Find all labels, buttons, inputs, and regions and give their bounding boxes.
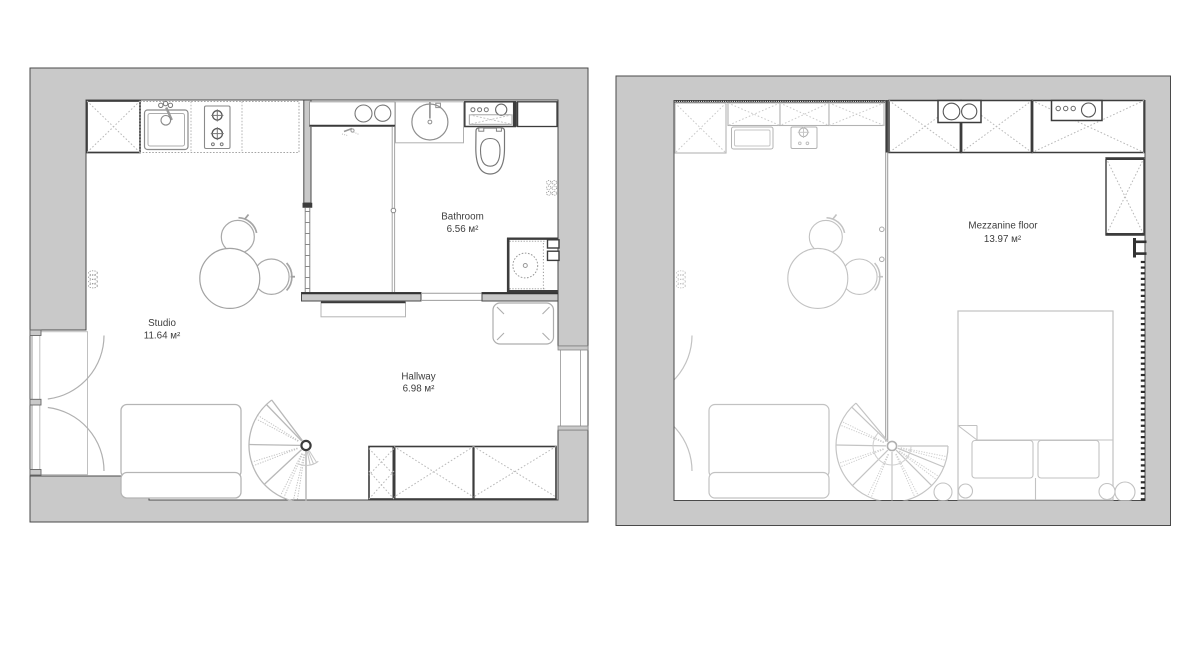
svg-text:6.98 м²: 6.98 м²	[403, 384, 436, 395]
svg-text:11.64 м²: 11.64 м²	[144, 331, 181, 342]
svg-text:Bathroom: Bathroom	[441, 212, 483, 223]
svg-text:6.56 м²: 6.56 м²	[447, 224, 480, 235]
svg-text:Hallway: Hallway	[401, 372, 435, 383]
svg-text:13.97 м²: 13.97 м²	[984, 234, 1022, 245]
svg-text:Mezzanine floor: Mezzanine floor	[968, 221, 1038, 232]
svg-text:Studio: Studio	[148, 318, 176, 329]
